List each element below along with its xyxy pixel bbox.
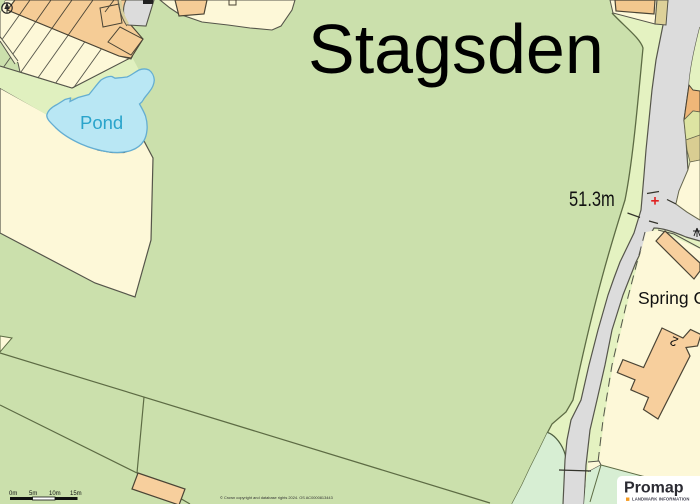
svg-text:Stagsden: Stagsden — [308, 10, 604, 88]
svg-text:Promap: Promap — [624, 480, 684, 497]
svg-text:0m: 0m — [9, 491, 17, 497]
svg-text:51.3m: 51.3m — [569, 188, 615, 212]
svg-text:15m: 15m — [70, 491, 82, 497]
svg-text:5m: 5m — [29, 491, 37, 497]
svg-text:Spring Co: Spring Co — [638, 288, 700, 308]
svg-text:LANDMARK INFORMATION: LANDMARK INFORMATION — [632, 497, 690, 502]
svg-text:Pond: Pond — [80, 112, 123, 133]
svg-text:© Crown copyright and database: © Crown copyright and database rights 20… — [220, 495, 333, 500]
svg-text:10m: 10m — [49, 491, 61, 497]
